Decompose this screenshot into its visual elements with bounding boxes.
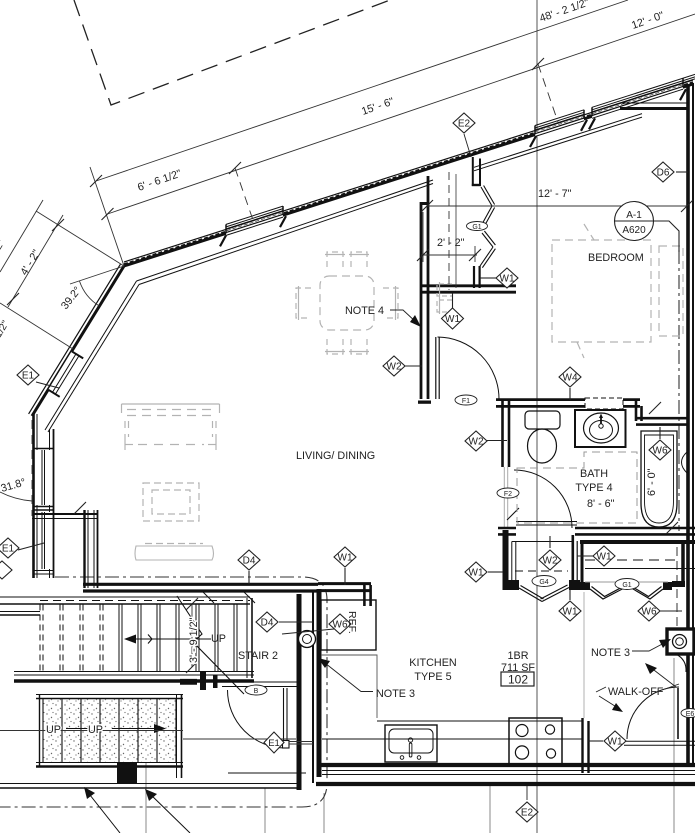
svg-text:W1: W1 [608, 737, 623, 748]
svg-text:W1: W1 [597, 552, 612, 563]
svg-text:W2: W2 [387, 362, 402, 373]
svg-text:102: 102 [508, 673, 528, 687]
svg-text:G4: G4 [539, 579, 548, 586]
svg-text:1BR: 1BR [507, 650, 528, 662]
svg-text:TYPE 4: TYPE 4 [575, 482, 612, 494]
svg-text:F2: F2 [504, 491, 512, 498]
svg-text:W6: W6 [653, 446, 668, 457]
svg-text:W6: W6 [642, 607, 657, 618]
svg-text:W6: W6 [333, 620, 348, 631]
svg-text:E1: E1 [22, 371, 35, 382]
svg-text:E2: E2 [458, 119, 471, 130]
svg-text:W1: W1 [563, 607, 578, 618]
svg-text:G1: G1 [622, 582, 631, 589]
svg-text:W1: W1 [469, 568, 484, 579]
svg-text:6' - 0": 6' - 0" [646, 468, 658, 496]
svg-text:WALK-OFF: WALK-OFF [608, 686, 664, 698]
svg-text:NOTE 4: NOTE 4 [345, 305, 384, 317]
svg-text:12' - 7": 12' - 7" [538, 188, 572, 200]
svg-text:D4: D4 [261, 618, 274, 629]
svg-text:REF.: REF. [346, 611, 358, 634]
svg-text:LIVING/ DINING: LIVING/ DINING [296, 450, 375, 462]
svg-text:W1: W1 [338, 553, 353, 564]
svg-text:3' - 9 1/2": 3' - 9 1/2" [188, 617, 200, 663]
svg-text:E6: E6 [686, 711, 695, 718]
svg-text:W2: W2 [469, 437, 484, 448]
svg-text:BATH: BATH [580, 468, 608, 480]
svg-text:W2: W2 [543, 556, 558, 567]
svg-text:NOTE 3: NOTE 3 [376, 688, 415, 700]
svg-text:W1: W1 [500, 274, 515, 285]
svg-text:2' - 2": 2' - 2" [437, 237, 465, 249]
svg-text:E2: E2 [521, 808, 534, 819]
svg-text:TYPE 5: TYPE 5 [414, 671, 451, 683]
svg-text:UP: UP [46, 724, 61, 736]
svg-text:BEDROOM: BEDROOM [588, 252, 644, 264]
svg-text:W1: W1 [445, 314, 460, 325]
svg-text:UP: UP [211, 633, 226, 645]
svg-text:E1: E1 [268, 738, 280, 749]
svg-text:W4: W4 [563, 373, 578, 384]
svg-text:A-1: A-1 [626, 210, 642, 221]
svg-text:B: B [254, 688, 259, 695]
svg-text:F1: F1 [462, 398, 470, 405]
svg-text:NOTE 3: NOTE 3 [591, 647, 630, 659]
svg-text:A620: A620 [622, 225, 646, 236]
svg-text:E1: E1 [2, 544, 15, 555]
svg-text:UP: UP [88, 724, 103, 736]
svg-text:D4: D4 [243, 556, 256, 567]
svg-text:D6: D6 [657, 168, 670, 179]
svg-text:8' - 6": 8' - 6" [587, 498, 615, 510]
svg-text:STAIR 2: STAIR 2 [238, 650, 278, 662]
svg-text:KITCHEN: KITCHEN [409, 657, 456, 669]
svg-text:G1: G1 [472, 224, 481, 231]
